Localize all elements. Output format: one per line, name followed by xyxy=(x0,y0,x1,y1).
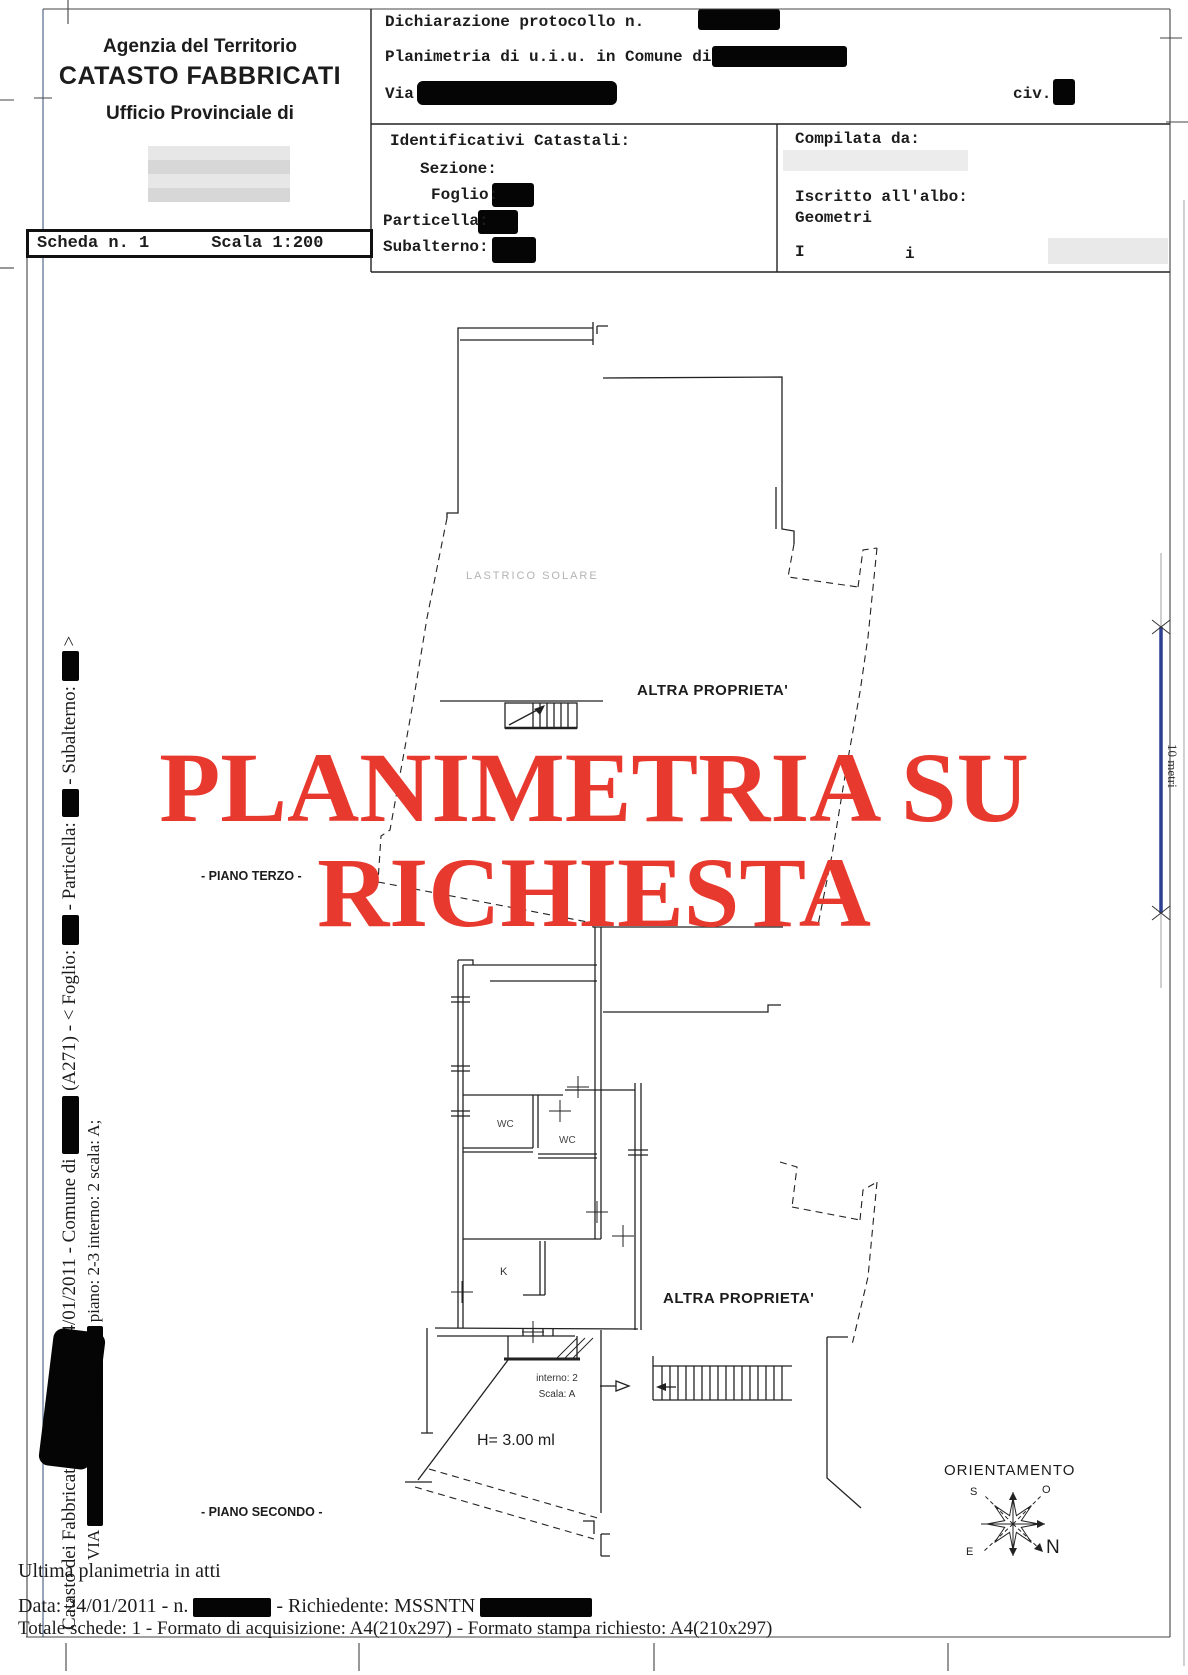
kitchen-label: K xyxy=(500,1266,507,1278)
height-note: H= 3.00 ml xyxy=(477,1432,555,1450)
scheda-number: Scheda n. 1 xyxy=(37,234,149,253)
ultima-planimetria-note: Ultima planimetria in atti xyxy=(18,1560,221,1583)
lastrico-solare-label: LASTRICO SOLARE xyxy=(466,570,599,582)
compilata-label: Compilata da: xyxy=(795,130,920,148)
civ-label: civ. xyxy=(1013,85,1051,103)
compass-s-label: S xyxy=(970,1486,977,1498)
agency-title: Agenzia del Territorio xyxy=(30,36,370,58)
wc2-label: WC xyxy=(559,1135,576,1146)
altra-proprieta-bottom-label: ALTRA PROPRIETA' xyxy=(663,1290,814,1307)
orientamento-label: ORIENTAMENTO xyxy=(944,1462,1075,1479)
cadastral-document-page: Agenzia del Territorio CATASTO FABBRICAT… xyxy=(0,0,1188,1675)
foglio-label: Foglio: xyxy=(431,186,498,204)
lower-plan-walls xyxy=(405,923,861,1556)
upper-plan-walls xyxy=(440,322,794,728)
partial-letter-right: i xyxy=(905,245,915,263)
albo-value: Geometri xyxy=(795,209,872,227)
footer-totale-line: Totale schede: 1 - Formato di acquisizio… xyxy=(18,1618,772,1640)
redaction-richiedente xyxy=(480,1598,592,1617)
compass-o-label: O xyxy=(1042,1484,1051,1496)
scala-interna-label: Scala: A xyxy=(520,1389,594,1400)
redaction-sidebar-subalterno xyxy=(62,651,79,681)
scheda-scala-box: Scheda n. 1 Scala 1:200 xyxy=(26,229,373,258)
piano-secondo-label: - PIANO SECONDO - xyxy=(201,1505,323,1519)
altra-proprieta-top-label: ALTRA PROPRIETA' xyxy=(637,682,788,699)
via-label: Via xyxy=(385,85,414,103)
catasto-title: CATASTO FABBRICATI xyxy=(30,62,370,91)
iscritto-label: Iscritto all'albo: xyxy=(795,188,968,206)
particella-label: Particella: xyxy=(383,212,489,230)
watermark-line2: RICHIESTA xyxy=(0,843,1188,943)
planimetria-label: Planimetria di u.i.u. in Comune di xyxy=(385,48,711,66)
compass-e-label: E xyxy=(966,1546,973,1558)
sezione-label: Sezione: xyxy=(420,160,497,178)
identificativi-label: Identificativi Catastali: xyxy=(390,132,630,150)
ufficio-title: Ufficio Provinciale di xyxy=(30,103,370,125)
subalterno-label: Subalterno: xyxy=(383,238,489,256)
compass-rose xyxy=(981,1492,1045,1556)
dichiarazione-label: Dichiarazione protocollo n. xyxy=(385,13,644,31)
scala-value: Scala 1:200 xyxy=(211,234,323,253)
partial-letter-left: I xyxy=(795,243,805,261)
compass-n-label: N xyxy=(1046,1537,1060,1559)
wc1-label: WC xyxy=(497,1119,514,1130)
watermark-line1: PLANIMETRIA SU xyxy=(0,738,1188,838)
footer-data-line: Data: 24/01/2011 - n. - Richiedente: MSS… xyxy=(18,1595,592,1618)
redaction-sidebar-comune xyxy=(62,1096,79,1154)
redaction-protocollo-footer xyxy=(193,1598,271,1617)
interno-label: interno: 2 xyxy=(520,1373,594,1384)
